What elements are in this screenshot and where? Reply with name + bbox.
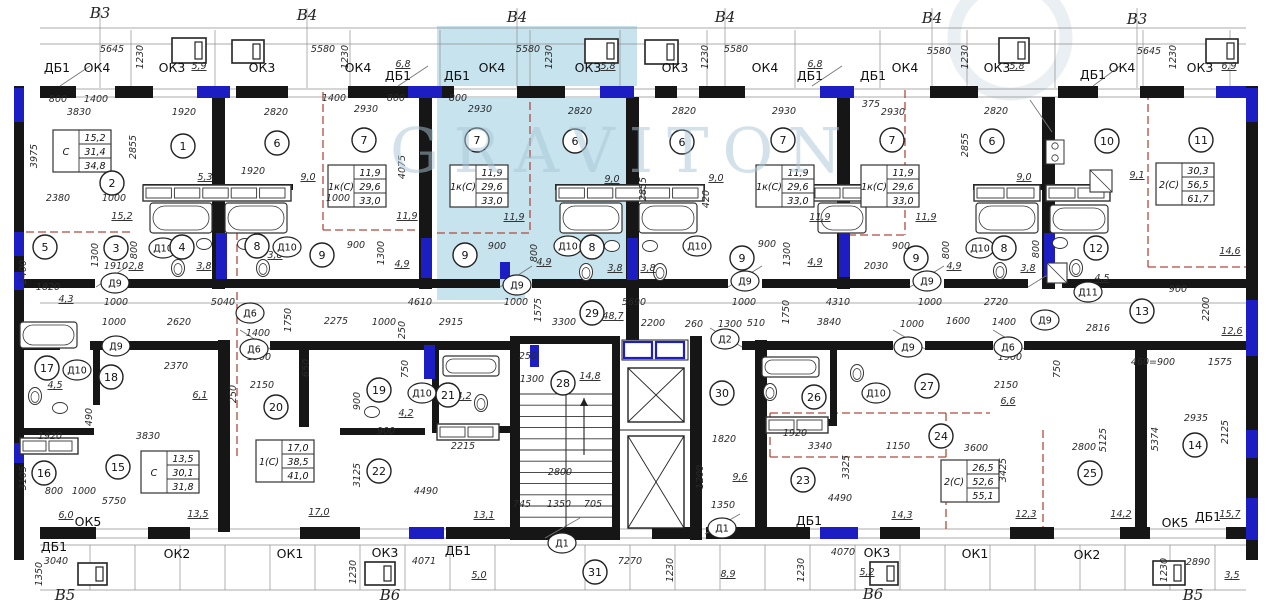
room-number: 17 xyxy=(40,362,54,375)
door-tag-label: Д1 xyxy=(715,524,728,535)
room-number: 2 xyxy=(109,177,116,190)
dim-label: 14,6 xyxy=(1219,246,1240,257)
dim-label: 1000 xyxy=(732,297,756,308)
room-number: 8 xyxy=(589,241,596,254)
door-tag-label: Д9 xyxy=(1038,316,1051,327)
dim-label: 1000 xyxy=(504,297,528,308)
dim-label: 800 xyxy=(1031,240,1042,258)
door-tag-label: Д2 xyxy=(718,335,731,346)
axis-label: В5 xyxy=(54,586,76,604)
dim-label: 5580 xyxy=(927,46,951,57)
toilet-icon xyxy=(764,384,777,401)
dim-label: 3,5 xyxy=(1224,570,1239,581)
door-tag-label: Д9 xyxy=(920,277,933,288)
dim-label: 5125 xyxy=(1098,428,1109,452)
dim-label: 1575 xyxy=(533,298,544,322)
wall-segment-blue xyxy=(820,86,854,98)
room-number: 3 xyxy=(113,242,120,255)
dim-label: 2890 xyxy=(1186,557,1210,568)
window-label: ОК1 xyxy=(277,546,304,561)
floor-plan-canvas: С15,231,434,81к(С)11,929,633,01к(С)11,92… xyxy=(0,0,1280,606)
door-tag-label: Д9 xyxy=(109,342,122,353)
window-label: ОК4 xyxy=(752,60,779,75)
dim-label: 2370 xyxy=(164,361,188,372)
dim-label: 750 xyxy=(1052,360,1063,378)
dim-label: 2150 xyxy=(250,380,274,391)
dim-label: 2275 xyxy=(324,316,348,327)
dim-label: 750 xyxy=(400,360,411,378)
axis-label: В3 xyxy=(89,4,111,22)
dim-label: 5580 xyxy=(724,44,748,55)
door-tag-label: Д11 xyxy=(1078,288,1098,299)
dim-label: 2720 xyxy=(984,297,1008,308)
dim-label: 1230 xyxy=(348,560,359,584)
wall-segment xyxy=(270,341,510,350)
dim-label: 2030 xyxy=(864,261,888,272)
dim-label: 1820 xyxy=(712,434,736,445)
wall-segment xyxy=(762,279,910,288)
dim-label: 4490 xyxy=(414,486,438,497)
wall-segment-blue xyxy=(600,86,634,98)
dim-label: 13,1 xyxy=(473,510,494,521)
area-table-type: С xyxy=(151,468,158,479)
dim-label: 4,9 xyxy=(536,257,551,268)
window-label: ОК3 xyxy=(575,60,602,75)
window-label: ОК3 xyxy=(249,60,276,75)
area-table-value: 29,6 xyxy=(359,182,380,193)
room-number: 8 xyxy=(254,240,261,253)
dim-label: 1300 xyxy=(718,319,742,330)
door-tag-label: Д1 xyxy=(555,539,568,550)
dim-label: 5,8 xyxy=(1009,61,1024,72)
dim-label: 1920 xyxy=(38,431,62,442)
dim-label: 2400 xyxy=(18,260,29,284)
dim-label: 800 xyxy=(387,93,405,104)
dim-label: 1000 xyxy=(326,193,350,204)
window-label: ОК4 xyxy=(1109,60,1136,75)
wall-segment-blue xyxy=(197,86,230,98)
wall-segment xyxy=(1140,86,1184,98)
dim-label: 2200 xyxy=(1201,297,1212,321)
room-number: 29 xyxy=(585,307,599,320)
dim-label: 3040 xyxy=(44,556,68,567)
dim-label: 14,8 xyxy=(579,371,600,382)
wall-segment-blue xyxy=(424,345,435,379)
dim-label: 1230 xyxy=(135,45,146,69)
dim-label: 11,9 xyxy=(809,212,830,223)
wall-segment xyxy=(299,345,309,427)
area-table-value: 30,3 xyxy=(1187,166,1208,177)
dim-label: 11,9 xyxy=(396,211,417,222)
dim-label: 2620 xyxy=(167,317,191,328)
dim-label: 1230 xyxy=(544,45,555,69)
dim-label: 1575 xyxy=(1208,357,1232,368)
window-label: ОК3 xyxy=(159,60,186,75)
dim-label: 5,8 xyxy=(600,61,615,72)
area-table-type: 1к(С) xyxy=(861,182,887,193)
wall-segment xyxy=(925,341,993,350)
dim-label: 800 xyxy=(129,241,140,259)
window-label: ОК3 xyxy=(984,60,1011,75)
dim-label: 5,2 xyxy=(859,567,874,578)
wall-segment xyxy=(930,86,978,98)
dim-label: 1920 xyxy=(783,428,807,439)
counter-row xyxy=(143,185,291,201)
dim-label: 1350 xyxy=(711,500,735,511)
wall-segment xyxy=(218,340,230,532)
room-number: 28 xyxy=(556,377,570,390)
window-label: ДБ1 xyxy=(44,60,70,75)
wall-segment-blue xyxy=(14,232,24,256)
dim-label: 650 xyxy=(301,359,312,377)
wall-segment-blue xyxy=(14,88,24,122)
dim-label: 4,9 xyxy=(946,261,961,272)
dim-label: 15,7 xyxy=(1219,509,1240,520)
dim-label: 3840 xyxy=(817,317,841,328)
room-number: 4 xyxy=(179,241,186,254)
room-number: 27 xyxy=(920,380,934,393)
area-table-value: 41,0 xyxy=(287,471,308,482)
door-tag-label: Д10 xyxy=(67,366,87,377)
wall-segment-blue xyxy=(421,238,432,278)
dim-label: 12,6 xyxy=(1221,326,1242,337)
room-number: 9 xyxy=(739,252,746,265)
door-tag-label: Д6 xyxy=(247,345,260,356)
window-label: ДБ1 xyxy=(1195,509,1221,524)
dim-label: 800 xyxy=(45,486,63,497)
window-label: ОК3 xyxy=(1187,60,1214,75)
door-tag-label: Д6 xyxy=(1001,343,1014,354)
axis-label: В6 xyxy=(379,586,401,604)
wall-segment-blue xyxy=(216,233,227,279)
dim-label: 1600 xyxy=(946,316,970,327)
toilet-icon xyxy=(257,260,270,277)
room-number: 16 xyxy=(37,467,51,480)
wall-segment xyxy=(236,86,288,98)
dim-label: 6,9 xyxy=(1221,61,1236,72)
wall-segment-blue xyxy=(409,527,444,539)
window-label: ОК4 xyxy=(479,60,506,75)
dim-label: 5040 xyxy=(211,297,235,308)
window-label: ДБ1 xyxy=(385,68,411,83)
axis-label: В4 xyxy=(506,8,528,26)
dim-label: 2915 xyxy=(439,317,463,328)
dim-label: 2150 xyxy=(994,380,1018,391)
dim-label: 1230 xyxy=(796,558,807,582)
dim-label: 1230 xyxy=(665,558,676,582)
wall-segment-blue xyxy=(1246,498,1258,540)
dim-label: 3105 xyxy=(18,466,29,490)
door-tag-label: Д9 xyxy=(901,343,914,354)
dim-label: 250 xyxy=(397,321,408,339)
dim-label: 2125 xyxy=(1220,420,1231,444)
wall-segment xyxy=(446,527,510,539)
stove-icon xyxy=(1046,140,1064,164)
wall-segment-blue xyxy=(839,233,850,277)
wall-segment-blue xyxy=(1246,430,1258,458)
wall-segment xyxy=(148,527,190,539)
sink-icon xyxy=(643,241,658,252)
area-table-value: 11,9 xyxy=(359,168,380,179)
dim-label: 2816 xyxy=(1086,323,1110,334)
window-label: ОК4 xyxy=(892,60,919,75)
axis-label: В5 xyxy=(1182,586,1204,604)
dim-label: 11,9 xyxy=(503,212,524,223)
room-number: 26 xyxy=(807,391,821,404)
dim-label: 1000 xyxy=(104,297,128,308)
dim-label: 1820 xyxy=(36,282,60,293)
wall-segment xyxy=(1058,86,1098,98)
dim-label: 2855 xyxy=(128,135,139,159)
dim-label: 6,1 xyxy=(192,390,207,401)
room-number: 6 xyxy=(989,135,996,148)
dim-label: 2,8 xyxy=(128,261,143,272)
wall-segment xyxy=(880,527,920,539)
wall-segment xyxy=(1024,341,1246,350)
area-table-type: 2(С) xyxy=(944,477,964,488)
wall-segment xyxy=(612,336,620,540)
room-number: 5 xyxy=(42,241,49,254)
room-number: 13 xyxy=(1135,305,1149,318)
dim-label: 1750 xyxy=(283,308,294,332)
dim-label: 3975 xyxy=(29,144,40,168)
dim-label: 5645 xyxy=(100,44,124,55)
room-number: 20 xyxy=(269,401,283,414)
area-table-value: 38,5 xyxy=(287,457,308,468)
dim-label: 5,0 xyxy=(471,570,486,581)
dim-label: 3830 xyxy=(136,431,160,442)
dim-label: 1300 xyxy=(520,374,544,385)
wall-segment xyxy=(510,336,620,344)
toilet-icon xyxy=(475,395,488,412)
dim-label: 900 xyxy=(758,239,776,250)
dim-label: 2820 xyxy=(264,107,288,118)
dim-label: 900 xyxy=(347,240,365,251)
toilet-icon xyxy=(29,388,42,405)
area-table-value: 61,7 xyxy=(1187,194,1208,205)
wall-segment xyxy=(300,527,360,539)
dim-label: 2200 xyxy=(641,318,665,329)
dim-label: 4490 xyxy=(828,493,852,504)
dim-label: 11,9 xyxy=(915,212,936,223)
wall-segment-blue xyxy=(627,238,638,280)
door-tag-label: Д10 xyxy=(687,242,707,253)
room-number: 24 xyxy=(934,430,948,443)
dim-label: 800 xyxy=(941,241,952,259)
dim-label: 5580 xyxy=(516,44,540,55)
dim-label: 17,0 xyxy=(308,507,329,518)
room-number: 22 xyxy=(372,465,386,478)
dim-label: 14,2 xyxy=(1110,509,1131,520)
room-number: 1 xyxy=(180,140,187,153)
dim-label: 2820 xyxy=(984,106,1008,117)
room-number: 10 xyxy=(1100,135,1114,148)
area-table-value: 31,8 xyxy=(172,482,193,493)
window-label: ДБ1 xyxy=(860,68,886,83)
window-label: ДБ1 xyxy=(796,513,822,528)
dim-label: 5,9 xyxy=(191,61,206,72)
wall-segment-blue xyxy=(1246,300,1258,356)
dim-label: 4,9 xyxy=(807,257,822,268)
area-table-value: 55,1 xyxy=(972,491,993,502)
watermark-text: GRAVITON xyxy=(390,114,856,187)
window-label: ОК3 xyxy=(372,545,399,560)
dim-label: 9,1 xyxy=(1129,170,1144,181)
area-table-type: С xyxy=(63,147,70,158)
toilet-icon xyxy=(172,260,185,277)
dim-label: 260 xyxy=(685,319,703,330)
wall-segment xyxy=(517,86,565,98)
window-label: ОК5 xyxy=(75,514,102,529)
dim-label: 2930 xyxy=(354,104,378,115)
dim-label: 2800 xyxy=(548,467,572,478)
dim-label: 900 xyxy=(377,426,395,437)
dim-label: 3125 xyxy=(352,463,363,487)
window-label: ОК2 xyxy=(164,546,191,561)
wall-segment xyxy=(944,279,1028,288)
area-table-value: 33,0 xyxy=(481,196,502,207)
window-label: ДБ1 xyxy=(797,68,823,83)
wall-segment xyxy=(128,279,500,288)
dim-label: 1300 xyxy=(90,243,101,267)
dim-label: 4070 xyxy=(831,547,855,558)
dim-label: 7270 xyxy=(618,556,642,567)
dim-label: 4,5 xyxy=(47,380,62,391)
dim-label: 1350 xyxy=(34,562,45,586)
dim-label: 250 xyxy=(228,385,239,403)
dim-label: 375 xyxy=(862,99,880,110)
area-table-value: 13,5 xyxy=(172,454,193,465)
dim-label: 5645 xyxy=(1137,46,1161,57)
dim-label: 9,0 xyxy=(300,172,315,183)
dim-label: 705 xyxy=(584,499,602,510)
dim-label: 1200 xyxy=(695,465,706,489)
dim-label: 1400 xyxy=(992,317,1016,328)
dim-label: 800 xyxy=(49,94,67,105)
room-number: 23 xyxy=(796,474,810,487)
window-label: ОК5 xyxy=(1162,515,1189,530)
dim-label: 9,0 xyxy=(1016,172,1031,183)
dim-label: 1000 xyxy=(372,317,396,328)
axis-label: В3 xyxy=(1126,10,1148,28)
door-tag-label: Д9 xyxy=(738,277,751,288)
room-number: 30 xyxy=(715,387,729,400)
window-label: ОК3 xyxy=(662,60,689,75)
area-table-value: 29,6 xyxy=(892,182,913,193)
door-tag-label: Д9 xyxy=(108,279,121,290)
area-table-value: 30,1 xyxy=(172,468,193,479)
dim-label: 1400 xyxy=(246,328,270,339)
dim-label: 3830 xyxy=(67,107,91,118)
wall-segment xyxy=(532,279,728,288)
dim-label: 1150 xyxy=(886,441,910,452)
dim-label: 1000 xyxy=(918,297,942,308)
room-number: 31 xyxy=(588,566,602,579)
area-table-value: 11,9 xyxy=(892,168,913,179)
dim-label: 12,3 xyxy=(1015,509,1036,520)
window-label: ДБ1 xyxy=(1080,67,1106,82)
toilet-icon xyxy=(1070,260,1083,277)
axis-label: В4 xyxy=(714,8,736,26)
area-table-value: 26,5 xyxy=(972,463,993,474)
area-table-value: 34,8 xyxy=(84,161,105,172)
dim-label: 4,9 xyxy=(394,259,409,270)
room-number: 8 xyxy=(1001,242,1008,255)
room-number: 9 xyxy=(319,249,326,262)
dim-label: 1750 xyxy=(781,300,792,324)
wall-segment-blue xyxy=(820,527,858,539)
dim-label: 1230 xyxy=(700,45,711,69)
dim-label: 1920 xyxy=(241,166,265,177)
wall-segment xyxy=(655,86,677,98)
dim-label: 1000 xyxy=(72,486,96,497)
dim-label: 420 xyxy=(701,190,712,208)
dim-label: 800 xyxy=(449,93,467,104)
dim-label: 4,5 xyxy=(1094,273,1109,284)
floorplan-sheet: С15,231,434,81к(С)11,929,633,01к(С)11,92… xyxy=(0,0,1280,606)
plan-drawing: С15,231,434,81к(С)11,929,633,01к(С)11,92… xyxy=(14,4,1258,604)
dim-label: 1400 xyxy=(84,94,108,105)
dim-label: 1300 xyxy=(782,242,793,266)
dim-label: 250 xyxy=(519,351,537,362)
dim-label: 1230 xyxy=(1159,558,1170,582)
window-label: ОК4 xyxy=(84,60,111,75)
wall-segment xyxy=(1010,527,1054,539)
area-table-type: 1к(С) xyxy=(328,182,354,193)
wall-segment xyxy=(1135,348,1147,530)
toilet-icon xyxy=(851,365,864,382)
dim-label: 4310 xyxy=(826,297,850,308)
dim-label: 1230 xyxy=(960,45,971,69)
dim-label: 5750 xyxy=(102,496,126,507)
dim-label: 745 xyxy=(513,499,531,510)
dim-label: 2215 xyxy=(451,441,475,452)
room-number: 14 xyxy=(1188,439,1202,452)
dim-label: 3,8 xyxy=(196,261,211,272)
toilet-icon xyxy=(580,264,593,281)
dim-label: 900 xyxy=(352,392,363,410)
room-number: 12 xyxy=(1089,242,1103,255)
door-tag-label: Д6 xyxy=(243,309,256,320)
wall-segment xyxy=(830,348,837,426)
dim-label: 4,3 xyxy=(58,294,73,305)
room-number: 9 xyxy=(913,252,920,265)
dim-label: 2855 xyxy=(960,133,971,157)
axis-label: В6 xyxy=(862,585,884,603)
axis-label: В4 xyxy=(921,9,943,27)
dim-label: 5,3 xyxy=(197,172,212,183)
wall-segment xyxy=(699,86,745,98)
room-number: 9 xyxy=(462,249,469,262)
room-number: 7 xyxy=(361,134,368,147)
wall-segment xyxy=(742,341,893,350)
dim-label: 48,7 xyxy=(602,311,623,322)
door-tag-label: Д10 xyxy=(277,243,297,254)
sink-icon xyxy=(53,403,68,414)
wall-segment xyxy=(690,336,702,540)
dim-label: 3340 xyxy=(808,441,832,452)
dim-label: 510 xyxy=(747,318,765,329)
room-number: 6 xyxy=(274,137,281,150)
dim-label: 15,2 xyxy=(111,211,132,222)
room-number: 21 xyxy=(441,389,455,402)
counter-row xyxy=(556,185,704,201)
area-table-value: 33,0 xyxy=(787,196,808,207)
window-label: ДБ1 xyxy=(444,68,470,83)
sink-icon xyxy=(1053,238,1068,249)
dim-label: 6,6 xyxy=(1000,396,1015,407)
dim-label: 4,2 xyxy=(398,408,413,419)
